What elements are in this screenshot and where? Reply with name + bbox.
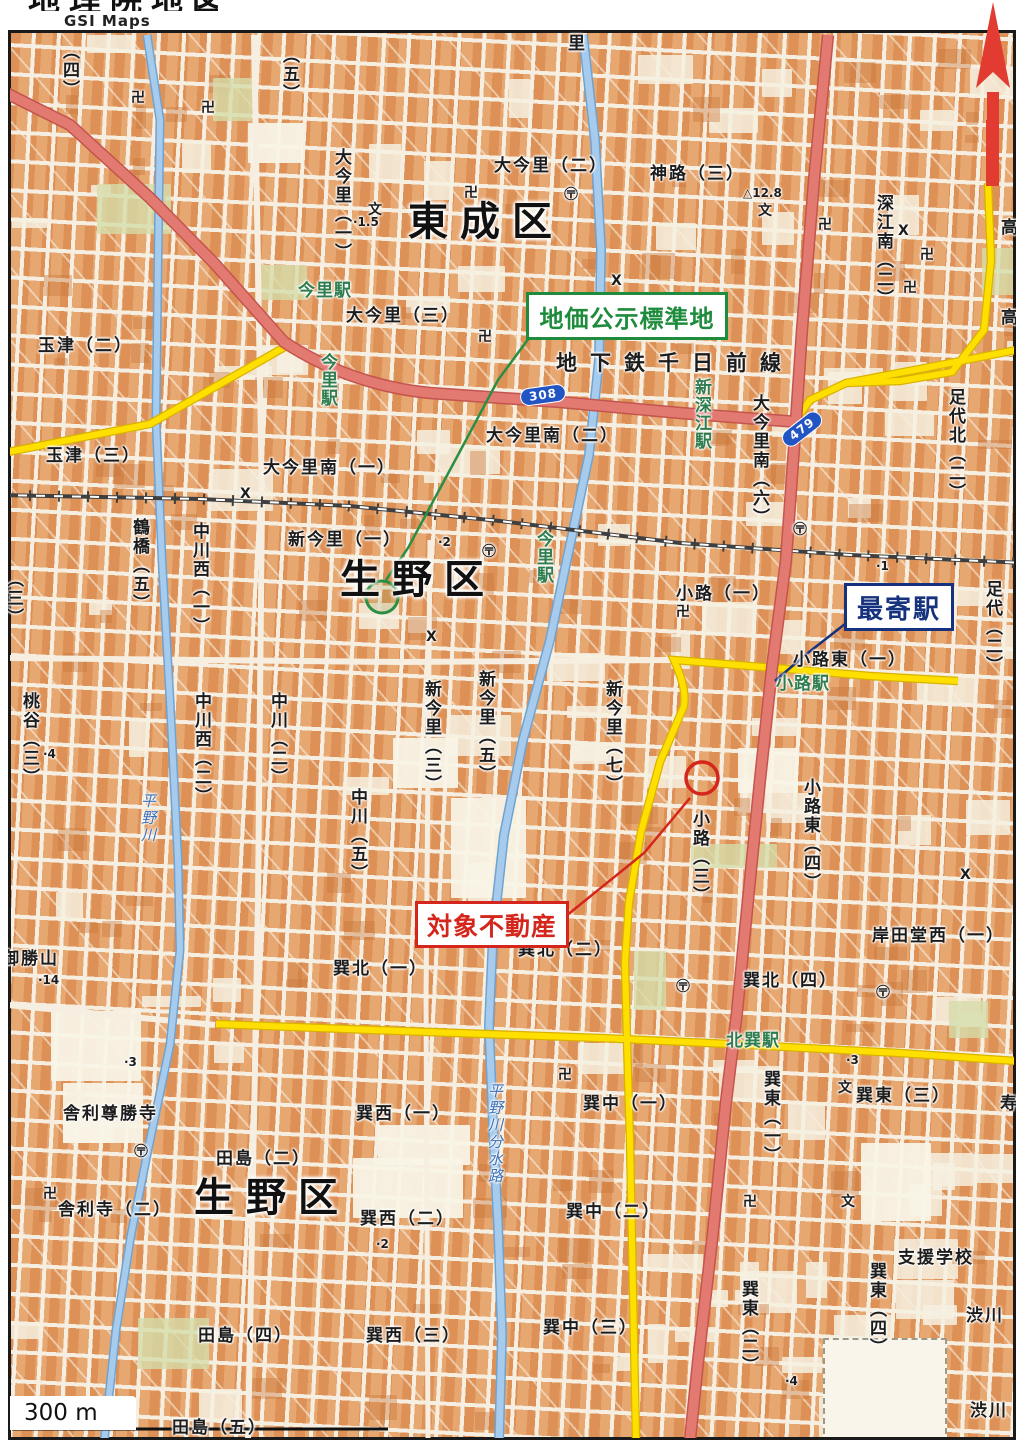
spot-label: ·4 bbox=[43, 748, 56, 760]
area-label: 小路（一） bbox=[676, 586, 771, 603]
spot-label: ·2 bbox=[438, 536, 451, 548]
area-label: 大今里南（六） bbox=[750, 394, 767, 527]
station-label: 小路駅 bbox=[776, 676, 830, 693]
scale-bar: 300 m bbox=[10, 1396, 136, 1430]
area-label: 神路（三） bbox=[650, 166, 745, 183]
river-label: 平野川 bbox=[140, 793, 155, 844]
map-symbol-icon: 卍 bbox=[43, 1187, 57, 1201]
area-label: 新今里（三） bbox=[422, 680, 439, 794]
area-label: 寿 bbox=[1000, 1096, 1016, 1113]
station-label: 新深江駅 bbox=[692, 378, 709, 450]
area-label: 新今里（七） bbox=[603, 680, 620, 794]
route-shield-479: 479 bbox=[778, 408, 825, 451]
nearest-station-annotation: 最寄駅 bbox=[844, 583, 954, 631]
map-symbol-icon: 卍 bbox=[903, 281, 917, 295]
area-label: 巽北（一） bbox=[333, 961, 428, 978]
area-label: 桃谷（三） bbox=[20, 692, 37, 787]
area-label: 田島（四） bbox=[198, 1328, 293, 1345]
map-symbol-icon: 卍 bbox=[743, 1195, 757, 1209]
area-label: （三） bbox=[8, 570, 21, 627]
area-label: 玉津（二） bbox=[38, 338, 133, 355]
map-symbol-icon: 〶 bbox=[134, 1145, 148, 1159]
area-label: 新今里（五） bbox=[476, 670, 493, 784]
area-label: 巽西（一） bbox=[356, 1106, 451, 1123]
area-label: 中川（二） bbox=[268, 692, 285, 787]
area-label: 中川（五） bbox=[348, 788, 365, 883]
area-label: 岸田堂西（一） bbox=[872, 928, 1005, 945]
area-label: 中川西（二） bbox=[192, 692, 209, 806]
area-label: 舎利尊勝寺 bbox=[63, 1106, 158, 1123]
area-label: 支援学校 bbox=[898, 1250, 974, 1267]
map-symbol-icon: 〶 bbox=[482, 545, 496, 559]
gsi-maps-logo: 地理院地図 GSI Maps bbox=[28, 0, 218, 30]
map-symbol-icon: X bbox=[898, 224, 909, 238]
area-label: 中川西（一） bbox=[190, 522, 207, 636]
spot-label: ·1 bbox=[876, 560, 889, 572]
map-symbol-icon: X bbox=[426, 630, 437, 644]
area-label: 巽東（二） bbox=[739, 1280, 756, 1375]
area-label: 深江南（二） bbox=[874, 194, 891, 308]
station-label: 今里駅 bbox=[318, 353, 335, 407]
spot-label: ·14 bbox=[38, 974, 59, 986]
map-symbol-icon: X bbox=[960, 868, 971, 882]
spot-label: ·3 bbox=[124, 1056, 137, 1068]
area-label: 御勝山 bbox=[8, 951, 59, 968]
area-label: 新今里（一） bbox=[288, 532, 402, 549]
district-label: 生野区 bbox=[340, 560, 496, 600]
area-label: 小路（三） bbox=[690, 810, 707, 905]
map-symbol-icon: X bbox=[611, 274, 622, 288]
area-label: 大今里南（一） bbox=[263, 460, 396, 477]
area-label: 巽東（四） bbox=[867, 1262, 884, 1357]
area-label: 足代（二） bbox=[983, 580, 1000, 675]
subject-property-annotation: 対象不動産 bbox=[415, 901, 569, 948]
area-label: 巽東（三） bbox=[856, 1088, 951, 1105]
map-symbol-icon: 卍 bbox=[676, 605, 690, 619]
area-label: 高 bbox=[998, 218, 1015, 237]
area-label: 大今里（一） bbox=[332, 148, 349, 262]
station-label: 今里駅 bbox=[534, 530, 551, 584]
area-label: （五） bbox=[280, 46, 297, 103]
map-symbol-icon: 卍 bbox=[464, 186, 478, 200]
area-label: 高 bbox=[998, 308, 1015, 327]
area-label: 里 bbox=[568, 36, 587, 53]
map-symbol-icon: 卍 bbox=[478, 330, 492, 344]
area-label: 巽中（一） bbox=[583, 1096, 678, 1113]
map-symbol-icon: 卍 bbox=[201, 101, 215, 115]
district-label: 東成区 bbox=[408, 202, 564, 242]
map-symbol-icon: 文 bbox=[368, 203, 382, 217]
map-symbol-icon: 卍 bbox=[558, 1068, 572, 1082]
map-symbol-icon: 〶 bbox=[876, 986, 890, 1000]
map-symbol-icon: 卍 bbox=[131, 91, 145, 105]
spot-label: ·4 bbox=[785, 1375, 798, 1387]
map-symbol-icon: 〶 bbox=[564, 188, 578, 202]
map-symbol-icon: X bbox=[240, 487, 251, 501]
area-label: 巽中（二） bbox=[566, 1204, 661, 1221]
map-symbol-icon: 文 bbox=[758, 204, 772, 218]
area-label: 小路東（一） bbox=[793, 652, 907, 669]
gsi-maps-wordmark: GSI Maps bbox=[64, 12, 218, 30]
station-label: 今里駅 bbox=[298, 283, 352, 300]
area-label: 渋川 bbox=[966, 1308, 1004, 1325]
area-label: 巽東（一） bbox=[761, 1070, 778, 1165]
area-label: 小路東（四） bbox=[801, 778, 818, 892]
map-symbol-icon: 〶 bbox=[793, 523, 807, 537]
map-symbol-icon: 文 bbox=[838, 1081, 852, 1095]
area-label: 巽北（四） bbox=[743, 973, 838, 990]
area-label: 田島（二） bbox=[216, 1151, 311, 1168]
map-symbol-icon: 卍 bbox=[818, 218, 832, 232]
area-label: （四） bbox=[60, 42, 77, 99]
area-label: 大今里南（二） bbox=[486, 428, 619, 445]
map-symbol-icon: 文 bbox=[841, 1195, 855, 1209]
spot-label: ·3 bbox=[846, 1054, 859, 1066]
area-label: 巽西（二） bbox=[360, 1211, 455, 1228]
area-label: 巽西（三） bbox=[366, 1328, 461, 1345]
gsi-logo-clipped-kanji: 地理院地図 bbox=[28, 0, 218, 11]
route-shield-308: 308 bbox=[519, 383, 567, 407]
river-label: 平野川分水路 bbox=[487, 1083, 502, 1185]
area-label: 足代北（二） bbox=[946, 388, 963, 502]
station-label: 北巽駅 bbox=[726, 1033, 780, 1050]
label-layer: 地価公示標準地 最寄駅 対象不動産 300 m 東成区生野区生野区地下鉄千日前線… bbox=[8, 30, 1016, 1440]
area-label: 玉津（三） bbox=[46, 448, 141, 465]
standard-land-annotation: 地価公示標準地 bbox=[526, 292, 728, 340]
area-label: 田島（五） bbox=[172, 1420, 267, 1437]
spot-label: ·2 bbox=[376, 1238, 389, 1250]
area-label: 大今里（三） bbox=[346, 308, 460, 325]
map-symbol-icon: 卍 bbox=[920, 248, 934, 262]
subway-label: 地下鉄千日前線 bbox=[556, 353, 794, 374]
district-label: 生野区 bbox=[194, 1178, 350, 1218]
area-label: 大今里（二） bbox=[494, 158, 608, 175]
area-label: 鶴橋（五） bbox=[130, 518, 147, 613]
map-symbol-icon: 〶 bbox=[676, 980, 690, 994]
area-label: 渋川 bbox=[970, 1403, 1008, 1420]
area-label: 巽中（三） bbox=[543, 1320, 638, 1337]
spot-label: △12.8 bbox=[743, 187, 782, 199]
area-label: 舎利寺（二） bbox=[58, 1202, 172, 1219]
